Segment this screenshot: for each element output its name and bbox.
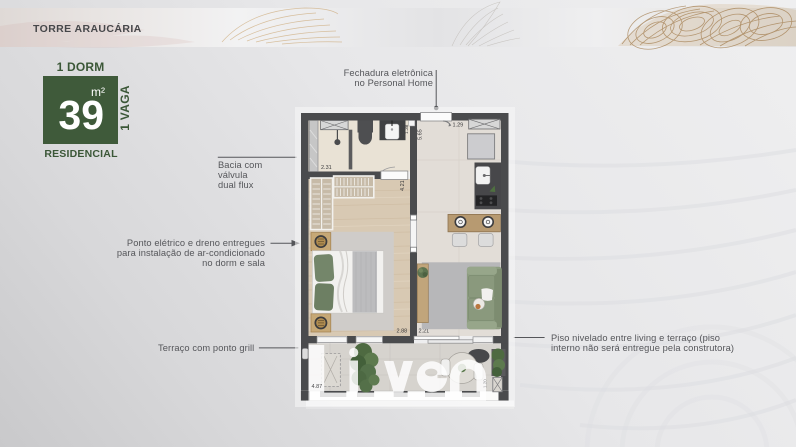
svg-text:1.29: 1.29 bbox=[453, 123, 464, 129]
svg-text:5.65: 5.65 bbox=[417, 129, 423, 140]
svg-text:1.38: 1.38 bbox=[404, 124, 410, 134]
svg-text:2.31: 2.31 bbox=[321, 165, 332, 171]
svg-text:4.21: 4.21 bbox=[400, 180, 406, 191]
svg-text:1.20: 1.20 bbox=[483, 379, 488, 388]
svg-text:4.87: 4.87 bbox=[312, 384, 323, 390]
svg-text:2.88: 2.88 bbox=[397, 329, 408, 335]
svg-text:2.21: 2.21 bbox=[419, 329, 430, 335]
